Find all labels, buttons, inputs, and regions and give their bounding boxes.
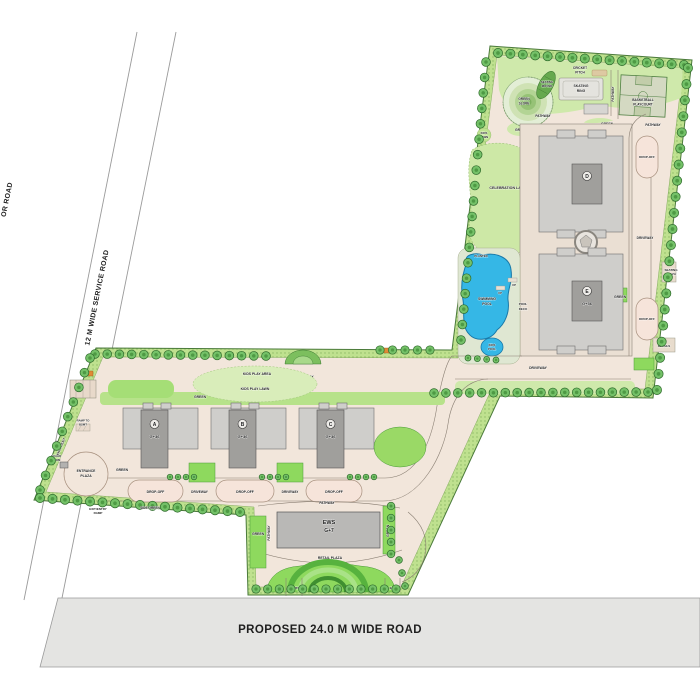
tree-icon-center bbox=[468, 246, 472, 250]
entrance-plaza-label2: PLAZA bbox=[80, 474, 92, 478]
tree-icon-center bbox=[461, 323, 465, 327]
tree-icon-center bbox=[485, 358, 487, 360]
tree-icon-center bbox=[658, 356, 662, 360]
drop-off-label: DROP-OFF bbox=[325, 490, 343, 494]
tree-icon-center bbox=[633, 60, 637, 64]
guard-room bbox=[60, 462, 68, 468]
tree-icon-center bbox=[289, 587, 292, 590]
tree-icon-center bbox=[389, 540, 392, 543]
tree-icon-center bbox=[475, 168, 479, 172]
pool-deck-label2: DECK bbox=[519, 307, 528, 311]
tree-icon-center bbox=[683, 98, 687, 102]
tree-icon-center bbox=[608, 58, 612, 62]
green-label: GREEN bbox=[614, 295, 627, 299]
drop-off-label: DROP-OFF bbox=[236, 490, 254, 494]
tree-icon-center bbox=[468, 391, 472, 395]
tree-icon-center bbox=[476, 153, 480, 157]
driveway-label: DRIVEWAY bbox=[282, 490, 300, 494]
tree-icon-center bbox=[394, 587, 397, 590]
tree-icon-center bbox=[575, 391, 579, 395]
up-label: UP bbox=[512, 283, 516, 287]
ews-building: EWS G+7 bbox=[277, 512, 380, 548]
basketball-label: BASKETBALL bbox=[632, 98, 654, 102]
tree-icon-center bbox=[285, 476, 287, 478]
tree-icon-center bbox=[432, 391, 436, 395]
tree-icon-center bbox=[466, 261, 470, 265]
tree-icon-center bbox=[238, 510, 242, 514]
tree-icon-center bbox=[655, 388, 659, 392]
tree-icon-center bbox=[444, 391, 448, 395]
tree-icon-center bbox=[336, 587, 339, 590]
tree-icon-center bbox=[428, 348, 431, 351]
tree-icon-center bbox=[469, 230, 473, 234]
tower-b-floors: G+36 bbox=[238, 434, 249, 439]
pathway-label: PATHWAY bbox=[319, 501, 335, 505]
tree-icon-center bbox=[213, 508, 217, 512]
seating-mound-label2: MOUND bbox=[542, 84, 553, 88]
tree-icon-center bbox=[622, 390, 626, 394]
tree-icon-center bbox=[583, 57, 587, 61]
ews-floors: G+7 bbox=[324, 528, 334, 534]
entrance-plaza-label: ENTRANCE bbox=[77, 469, 97, 473]
court-green bbox=[277, 463, 303, 482]
tree-icon-center bbox=[55, 444, 59, 448]
tree-icon-center bbox=[176, 506, 180, 510]
tree-icon-center bbox=[680, 131, 684, 135]
tree-icon-center bbox=[193, 476, 195, 478]
tree-icon-center bbox=[66, 415, 70, 419]
tree-icon-center bbox=[88, 356, 92, 360]
pavilion-block bbox=[584, 104, 608, 114]
tree-icon-center bbox=[113, 501, 117, 505]
tree-icon-center bbox=[620, 59, 624, 63]
tree-icon-center bbox=[563, 391, 567, 395]
tree-icon-center bbox=[254, 587, 257, 590]
tree-icon-center bbox=[313, 587, 316, 590]
tree-icon-center bbox=[49, 459, 53, 463]
planter-label: PLANTER bbox=[474, 254, 487, 258]
ramp-label2: BSMT bbox=[79, 423, 87, 427]
tree-icon-center bbox=[44, 474, 48, 478]
tree-icon-center bbox=[373, 476, 375, 478]
basketball-court bbox=[619, 75, 667, 117]
tree-icon-center bbox=[60, 430, 64, 434]
tree-icon-center bbox=[301, 587, 304, 590]
tree-icon-center bbox=[167, 353, 171, 357]
green-label: GREEN bbox=[252, 532, 265, 536]
tree-icon-center bbox=[670, 62, 674, 66]
tower-de-plaza: D E G+36 GREEN bbox=[520, 124, 632, 356]
tree-icon-center bbox=[383, 587, 386, 590]
tree-icon-center bbox=[177, 476, 179, 478]
swimming-pool-label: SWIMMING bbox=[478, 297, 496, 301]
up-label: UP bbox=[498, 291, 502, 295]
tree-icon-center bbox=[663, 308, 667, 312]
drop-off-label: DROP-OFF bbox=[639, 317, 655, 321]
kids-play-lawn-label: KIDS PLAY LAWN bbox=[241, 387, 270, 391]
tree-icon-center bbox=[201, 508, 205, 512]
tree-icon-center bbox=[571, 56, 575, 60]
service-road-label: 12 M WIDE SERVICE ROAD bbox=[84, 249, 110, 346]
tree-icon-center bbox=[389, 516, 392, 519]
skating-ring: SKATING RING bbox=[559, 78, 603, 100]
tower-d-letter: D bbox=[585, 174, 589, 180]
tree-icon-center bbox=[479, 122, 483, 126]
tree-icon-center bbox=[264, 354, 268, 358]
tree-icon-center bbox=[527, 391, 531, 395]
tree-icon-center bbox=[154, 353, 158, 357]
exit-entry-ramp-label2: RAMP bbox=[94, 511, 103, 515]
tree-icon-center bbox=[188, 507, 192, 511]
tree-icon-center bbox=[495, 359, 497, 361]
tree-icon-center bbox=[664, 292, 668, 296]
tree-icon-center bbox=[215, 354, 219, 358]
tree-icon-center bbox=[463, 292, 467, 296]
tree-icon-center bbox=[480, 107, 484, 111]
tree-icon-center bbox=[685, 82, 689, 86]
tree-icon-center bbox=[470, 215, 474, 219]
proposed-road-band: PROPOSED 24.0 M WIDE ROAD bbox=[40, 598, 700, 667]
tree-icon-center bbox=[130, 353, 134, 357]
tree-icon-center bbox=[203, 354, 207, 358]
tree-icon-center bbox=[191, 353, 195, 357]
tree-icon-center bbox=[467, 357, 469, 359]
tree-icon-center bbox=[533, 54, 537, 58]
tree-icon-center bbox=[645, 61, 649, 65]
tree-icon-center bbox=[484, 60, 488, 64]
tree-icon-center bbox=[558, 55, 562, 59]
tree-icon-center bbox=[105, 352, 109, 356]
tree-icon-center bbox=[269, 476, 271, 478]
tree-icon-center bbox=[278, 587, 281, 590]
tower-c-letter: C bbox=[329, 422, 333, 428]
tree-icon-center bbox=[126, 502, 130, 506]
green-slope-label: GREEN bbox=[518, 97, 530, 101]
tree-icon-center bbox=[371, 587, 374, 590]
driveway-label: DRIVEWAY bbox=[529, 366, 548, 370]
pathway-label-vertical: PATHWAY bbox=[267, 525, 271, 541]
tower-a-floors: G+36 bbox=[150, 434, 161, 439]
green-label: GREEN bbox=[194, 395, 207, 399]
tree-icon-center bbox=[185, 476, 187, 478]
tree-icon-center bbox=[348, 587, 351, 590]
tree-icon-center bbox=[77, 386, 81, 390]
tree-icon-center bbox=[226, 509, 230, 513]
tree-icon-center bbox=[83, 371, 87, 375]
tree-icon-center bbox=[472, 199, 476, 203]
proposed-road-label: PROPOSED 24.0 M WIDE ROAD bbox=[238, 624, 422, 636]
tree-icon-center bbox=[481, 91, 485, 95]
kids-pool-label2: POOL bbox=[488, 347, 496, 351]
tree-icon-center bbox=[38, 496, 42, 500]
tree-icon-center bbox=[521, 53, 525, 57]
tree-icon-center bbox=[389, 528, 392, 531]
tree-icon-center bbox=[142, 353, 146, 357]
skating-label2: RING bbox=[577, 89, 586, 93]
tree-icon-center bbox=[599, 390, 603, 394]
tree-icon-center bbox=[416, 348, 419, 351]
tree-icon-center bbox=[595, 58, 599, 62]
tree-icon-center bbox=[476, 357, 478, 359]
tree-icon-center bbox=[401, 572, 404, 575]
tree-icon-center bbox=[163, 505, 167, 509]
tree-icon-center bbox=[587, 391, 591, 395]
cricket-pitch-label2: PITCH bbox=[575, 71, 585, 75]
green-slope-label2: SLOPE bbox=[519, 102, 530, 106]
tree-icon-center bbox=[483, 76, 487, 80]
tower-a-letter: A bbox=[153, 422, 157, 428]
skating-label: SKATING bbox=[573, 84, 588, 88]
tree-icon-center bbox=[389, 504, 392, 507]
tree-icon-center bbox=[101, 501, 105, 505]
tree-icon-center bbox=[63, 498, 67, 502]
tree-icon-center bbox=[492, 391, 496, 395]
tree-icon-center bbox=[678, 147, 682, 151]
tree-icon-center bbox=[391, 348, 394, 351]
tree-icon-center bbox=[359, 587, 362, 590]
tree-icon-center bbox=[398, 559, 401, 562]
tree-icon-center bbox=[657, 62, 661, 66]
tree-icon-center bbox=[252, 354, 256, 358]
tree-icon-center bbox=[682, 114, 686, 118]
tower-e-building: E G+36 bbox=[539, 248, 623, 354]
tree-icon-center bbox=[261, 476, 263, 478]
tree-icon-center bbox=[634, 390, 638, 394]
tree-icon-center bbox=[539, 391, 543, 395]
pool-deck-label: POOL bbox=[519, 302, 528, 306]
kids-play-area-label: KIDS PLAY AREA bbox=[243, 372, 272, 376]
tower-c-floors: G+36 bbox=[326, 434, 337, 439]
tree-icon-center bbox=[671, 227, 675, 231]
tower-e-floors: G+36 bbox=[582, 301, 593, 306]
tree-icon-center bbox=[515, 391, 519, 395]
tree-icon-center bbox=[51, 497, 55, 501]
tree-icon-center bbox=[496, 51, 500, 55]
tree-icon-center bbox=[473, 184, 477, 188]
tree-icon-center bbox=[686, 66, 690, 70]
tree-icon-center bbox=[378, 348, 381, 351]
driveway-label: DRIVEWAY bbox=[191, 490, 209, 494]
tree-icon-center bbox=[38, 488, 42, 492]
site-plan: PROPOSED 24.0 M WIDE ROAD 12 M WIDE SERV… bbox=[0, 0, 700, 700]
tree-icon-center bbox=[459, 338, 463, 342]
tree-icon-center bbox=[88, 500, 92, 504]
tree-icon-center bbox=[169, 476, 171, 478]
tree-icon-center bbox=[357, 476, 359, 478]
driveway-label: DRIVEWAY bbox=[637, 236, 655, 240]
tree-icon-center bbox=[646, 390, 650, 394]
tree-icon-center bbox=[546, 54, 550, 58]
swimming-pool-label2: POOL bbox=[482, 302, 492, 306]
tree-icon-center bbox=[477, 137, 481, 141]
tree-icon-center bbox=[456, 391, 460, 395]
sector-road-label: OR ROAD bbox=[1, 182, 15, 218]
tree-icon-center bbox=[72, 400, 76, 404]
green-patch bbox=[108, 380, 174, 398]
tree-icon-center bbox=[266, 587, 269, 590]
tree-icon-center bbox=[403, 348, 406, 351]
side-green-label: SIDE GREEN bbox=[140, 506, 160, 510]
pathway-label: PATHWAY bbox=[645, 123, 661, 127]
tree-icon-center bbox=[660, 340, 664, 344]
cricket-pitch-label: CRICKET bbox=[573, 66, 587, 70]
tree-icon-center bbox=[657, 372, 661, 376]
tree-icon-center bbox=[179, 353, 183, 357]
pathway-label-vertical: PATHWAY bbox=[611, 86, 615, 102]
tree-icon-center bbox=[666, 275, 670, 279]
green-label: GREEN bbox=[116, 468, 129, 472]
green-strip bbox=[250, 516, 266, 568]
service-road: 12 M WIDE SERVICE ROAD OR ROAD bbox=[1, 32, 176, 600]
tree-icon-center bbox=[349, 476, 351, 478]
tree-icon-center bbox=[611, 390, 615, 394]
tree-icon-center bbox=[277, 476, 279, 478]
tree-icon-center bbox=[228, 354, 232, 358]
pathway-label: PATHWAY bbox=[535, 114, 551, 118]
drop-off-label: DROP-OFF bbox=[639, 155, 655, 159]
tree-icon-center bbox=[668, 259, 672, 263]
tree-icon-center bbox=[324, 587, 327, 590]
tree-icon-center bbox=[480, 391, 484, 395]
tree-icon-center bbox=[404, 585, 407, 588]
drop-off-label: DROP-OFF bbox=[147, 490, 165, 494]
tower-b-letter: B bbox=[241, 422, 245, 428]
tree-icon-center bbox=[674, 195, 678, 199]
tree-icon-center bbox=[669, 243, 673, 247]
tree-icon-center bbox=[76, 499, 80, 503]
tree-icon-center bbox=[672, 211, 676, 215]
cricket-pitch-strip bbox=[592, 70, 607, 76]
green-blob bbox=[374, 427, 426, 467]
tree-icon-center bbox=[661, 324, 665, 328]
tree-icon-center bbox=[462, 307, 466, 311]
tree-icon-center bbox=[677, 163, 681, 167]
tower-d-building: D bbox=[539, 130, 623, 238]
ews-name: EWS bbox=[323, 520, 336, 526]
tree-icon-center bbox=[118, 353, 122, 357]
tree-icon-center bbox=[504, 391, 508, 395]
basketball-label2: PLAYCOURT bbox=[633, 103, 653, 107]
tree-icon-center bbox=[465, 276, 469, 280]
tree-icon-center bbox=[551, 391, 555, 395]
tree-icon-center bbox=[509, 52, 513, 56]
tree-icon-center bbox=[675, 179, 679, 183]
tree-icon-center bbox=[389, 552, 392, 555]
tree-icon-center bbox=[365, 476, 367, 478]
tree-icon-center bbox=[240, 354, 244, 358]
